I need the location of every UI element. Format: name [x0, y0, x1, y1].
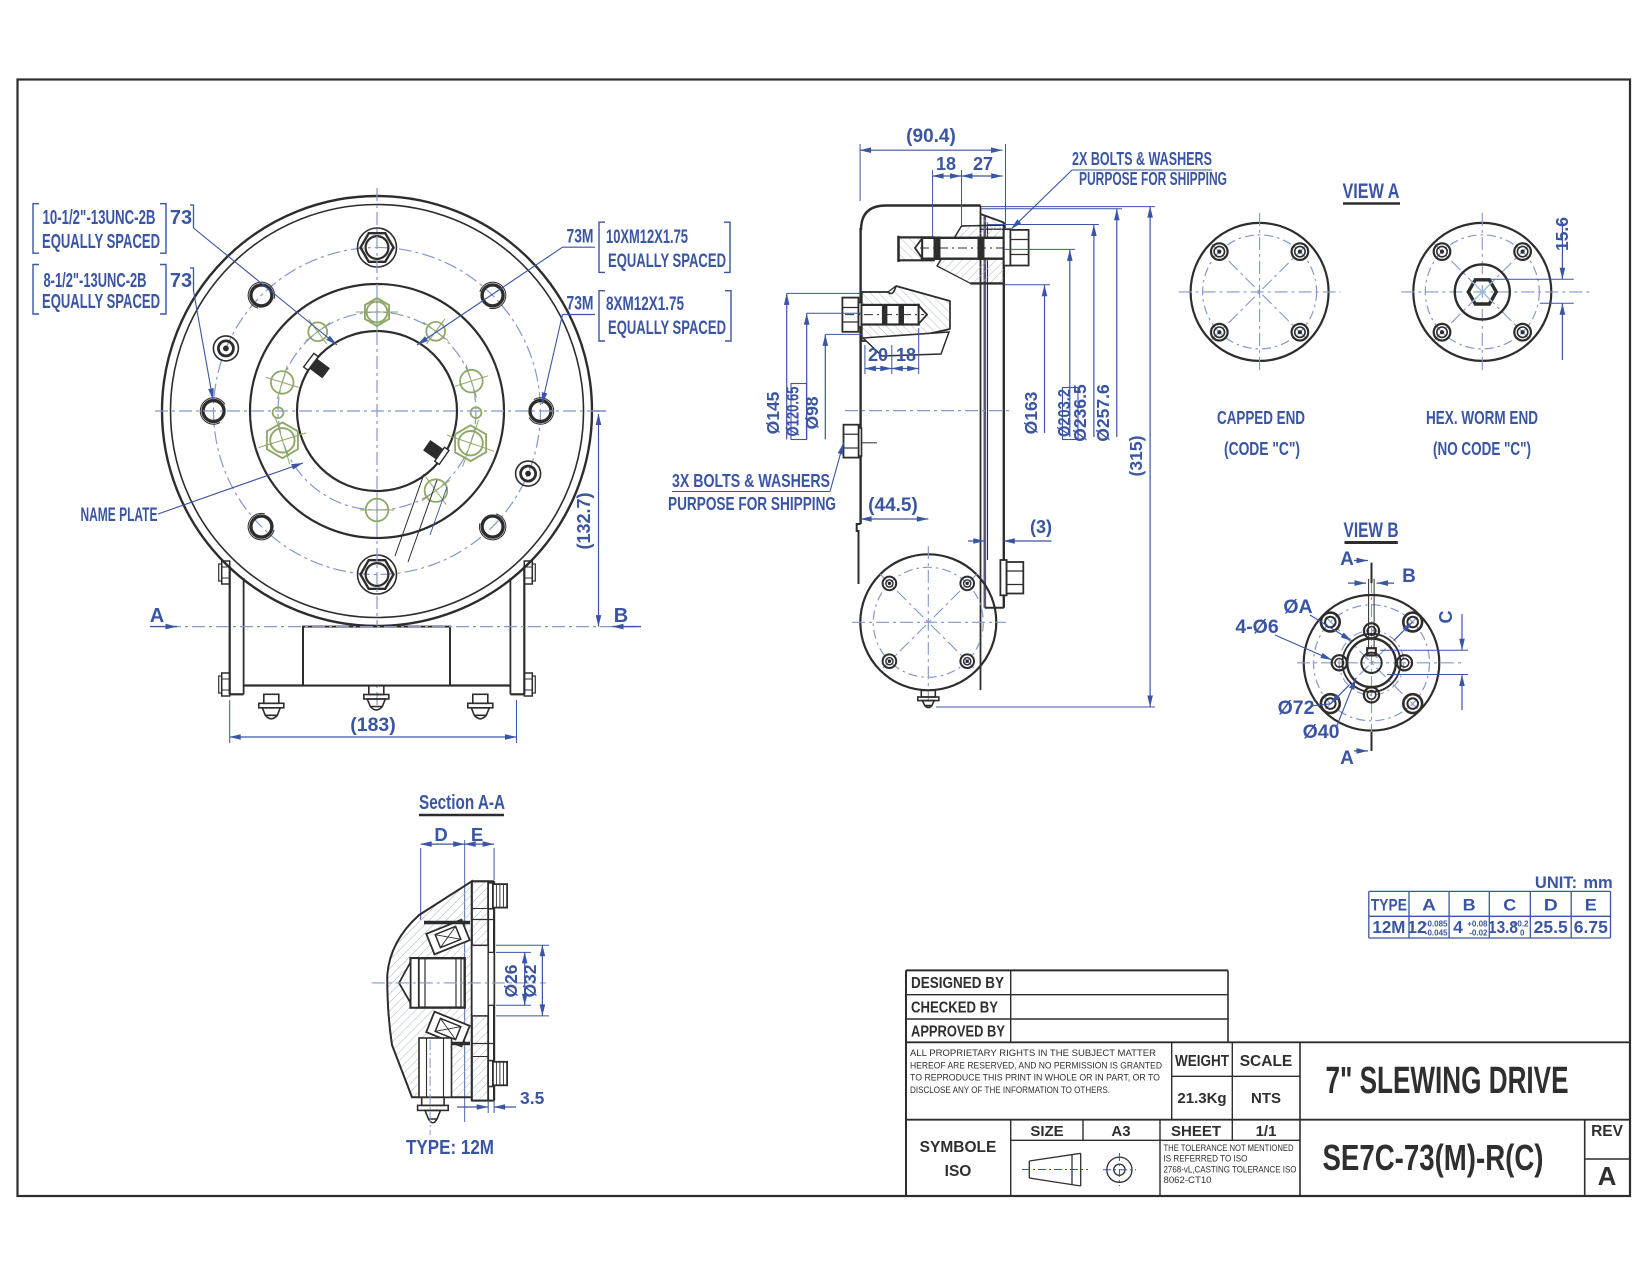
svg-text:ØA: ØA	[1283, 596, 1312, 618]
svg-text:B: B	[1402, 566, 1416, 587]
svg-text:8-1/2"-13UNC-2B: 8-1/2"-13UNC-2B	[44, 270, 147, 292]
svg-text:TYPE: 12M: TYPE: 12M	[406, 1136, 494, 1159]
svg-text:SYMBOLE: SYMBOLE	[920, 1139, 997, 1156]
svg-text:Ø98: Ø98	[802, 396, 822, 429]
svg-text:+0.2: +0.2	[1513, 920, 1529, 929]
svg-text:Ø145: Ø145	[763, 391, 783, 434]
svg-text:Ø120.65: Ø120.65	[783, 386, 803, 436]
svg-text:8062-CT10: 8062-CT10	[1164, 1175, 1212, 1185]
svg-text:(CODE "C"): (CODE "C")	[1224, 438, 1300, 459]
svg-text:UNIT:: UNIT:	[1535, 874, 1577, 892]
svg-text:+0.085: +0.085	[1423, 920, 1448, 929]
svg-text:Ø236.5: Ø236.5	[1070, 384, 1090, 442]
svg-text:73: 73	[170, 270, 192, 292]
svg-text:E: E	[471, 824, 483, 845]
svg-text:4-Ø6: 4-Ø6	[1235, 616, 1279, 638]
svg-text:18: 18	[896, 345, 916, 365]
svg-text:6.75: 6.75	[1574, 917, 1608, 937]
svg-text:1/1: 1/1	[1256, 1123, 1277, 1140]
svg-text:D: D	[434, 824, 447, 845]
svg-text:(90.4): (90.4)	[906, 126, 956, 147]
svg-text:WEIGHT: WEIGHT	[1175, 1053, 1229, 1070]
svg-text:25.5: 25.5	[1534, 917, 1568, 937]
svg-text:Ø163: Ø163	[1021, 391, 1041, 434]
svg-text:10XM12X1.75: 10XM12X1.75	[606, 227, 688, 248]
svg-text:Ø257.6: Ø257.6	[1093, 384, 1113, 442]
svg-text:20: 20	[868, 345, 888, 365]
svg-text:2X BOLTS & WASHERS: 2X BOLTS & WASHERS	[1072, 148, 1212, 169]
svg-text:Section A-A: Section A-A	[419, 791, 505, 814]
svg-text:(NO CODE "C"): (NO CODE "C")	[1433, 438, 1531, 459]
svg-text:A: A	[1340, 549, 1354, 570]
svg-text:A3: A3	[1111, 1123, 1130, 1140]
svg-text:CAPPED END: CAPPED END	[1217, 407, 1305, 428]
svg-text:Ø32: Ø32	[520, 964, 540, 997]
svg-text:Ø72: Ø72	[1278, 697, 1315, 719]
svg-text:15.6: 15.6	[1552, 217, 1572, 251]
svg-text:(44.5): (44.5)	[868, 495, 918, 516]
svg-text:mm: mm	[1583, 874, 1612, 892]
svg-text:IS REFERRED TO ISO: IS REFERRED TO ISO	[1164, 1154, 1248, 1164]
svg-text:(315): (315)	[1126, 436, 1146, 477]
svg-text:EQUALLY SPACED: EQUALLY SPACED	[608, 251, 726, 272]
svg-text:CHECKED BY: CHECKED BY	[911, 999, 999, 1016]
svg-text:TO REPRODUCE THIS PRINT IN WHO: TO REPRODUCE THIS PRINT IN WHOLE OR IN P…	[910, 1073, 1160, 1084]
svg-text:TYPE: TYPE	[1371, 896, 1407, 915]
svg-text:A: A	[1340, 748, 1354, 769]
svg-text:SIZE: SIZE	[1030, 1123, 1063, 1140]
svg-text:21.3Kg: 21.3Kg	[1177, 1090, 1226, 1107]
svg-text:PURPOSE FOR SHIPPING: PURPOSE FOR SHIPPING	[1079, 168, 1227, 189]
svg-text:REV: REV	[1591, 1123, 1624, 1140]
svg-text:ALL PROPRIETARY RIGHTS IN THE: ALL PROPRIETARY RIGHTS IN THE SUBJECT MA…	[910, 1048, 1156, 1059]
svg-text:12M: 12M	[1372, 917, 1405, 937]
svg-text:73M: 73M	[567, 227, 594, 248]
svg-text:EQUALLY SPACED: EQUALLY SPACED	[42, 291, 160, 313]
svg-text:18: 18	[936, 154, 956, 174]
svg-text:HEX. WORM END: HEX. WORM END	[1426, 407, 1538, 428]
svg-text:(183): (183)	[350, 714, 396, 736]
svg-text:NAME PLATE: NAME PLATE	[81, 504, 158, 526]
svg-text:A: A	[150, 605, 164, 627]
svg-text:Ø40: Ø40	[1303, 721, 1340, 743]
svg-text:-0.02: -0.02	[1469, 929, 1488, 938]
svg-text:EQUALLY SPACED: EQUALLY SPACED	[608, 318, 726, 339]
svg-text:C: C	[1436, 611, 1456, 624]
svg-text:E: E	[1585, 896, 1597, 915]
svg-text:27: 27	[973, 154, 993, 174]
svg-text:Ø26: Ø26	[501, 964, 521, 997]
svg-text:3.5: 3.5	[520, 1088, 545, 1108]
svg-text:4: 4	[1453, 917, 1463, 937]
svg-text:A: A	[1598, 1161, 1617, 1191]
svg-text:A: A	[1422, 896, 1436, 915]
svg-text:-0.045: -0.045	[1425, 929, 1448, 938]
svg-text:+0.08: +0.08	[1467, 920, 1488, 929]
svg-text:HEREOF ARE RESERVED, AND NO PE: HEREOF ARE RESERVED, AND NO PERMISSION I…	[910, 1060, 1162, 1071]
svg-text:(3): (3)	[1030, 517, 1052, 537]
svg-text:B: B	[614, 605, 628, 627]
svg-text:(132.7): (132.7)	[574, 492, 594, 549]
svg-text:0: 0	[1520, 929, 1525, 938]
svg-text:C: C	[1503, 896, 1516, 915]
svg-text:73: 73	[170, 207, 192, 229]
svg-text:8XM12X1.75: 8XM12X1.75	[606, 294, 684, 315]
svg-text:SCALE: SCALE	[1240, 1053, 1293, 1070]
svg-text:D: D	[1544, 896, 1558, 915]
svg-text:THE TOLERANCE NOT MENTIONED: THE TOLERANCE NOT MENTIONED	[1164, 1143, 1294, 1153]
svg-text:VIEW B: VIEW B	[1344, 519, 1399, 542]
svg-text:DISCLOSE ANY OF THE INFORMATIO: DISCLOSE ANY OF THE INFORMATION TO OTHER…	[910, 1085, 1110, 1096]
svg-text:APPROVED BY: APPROVED BY	[911, 1024, 1006, 1041]
svg-text:DESIGNED BY: DESIGNED BY	[911, 975, 1005, 992]
svg-text:3X BOLTS & WASHERS: 3X BOLTS & WASHERS	[672, 470, 830, 491]
svg-text:VIEW A: VIEW A	[1343, 180, 1400, 203]
svg-text:NTS: NTS	[1251, 1090, 1281, 1107]
svg-text:2768-vL,CASTING TOLERANCE IS: 2768-vL,CASTING TOLERANCE ISO	[1164, 1164, 1297, 1174]
svg-text:SE7C-73(M)-R(C): SE7C-73(M)-R(C)	[1323, 1137, 1544, 1178]
svg-text:73M: 73M	[567, 294, 594, 315]
svg-text:B: B	[1463, 896, 1476, 915]
svg-text:EQUALLY SPACED: EQUALLY SPACED	[42, 231, 160, 253]
svg-text:PURPOSE FOR SHIPPING: PURPOSE FOR SHIPPING	[668, 493, 836, 514]
svg-text:ISO: ISO	[945, 1163, 972, 1180]
svg-text:10-1/2"-13UNC-2B: 10-1/2"-13UNC-2B	[43, 207, 156, 229]
svg-text:SHEET: SHEET	[1171, 1123, 1221, 1140]
svg-text:7" SLEWING DRIVE: 7" SLEWING DRIVE	[1326, 1060, 1569, 1102]
